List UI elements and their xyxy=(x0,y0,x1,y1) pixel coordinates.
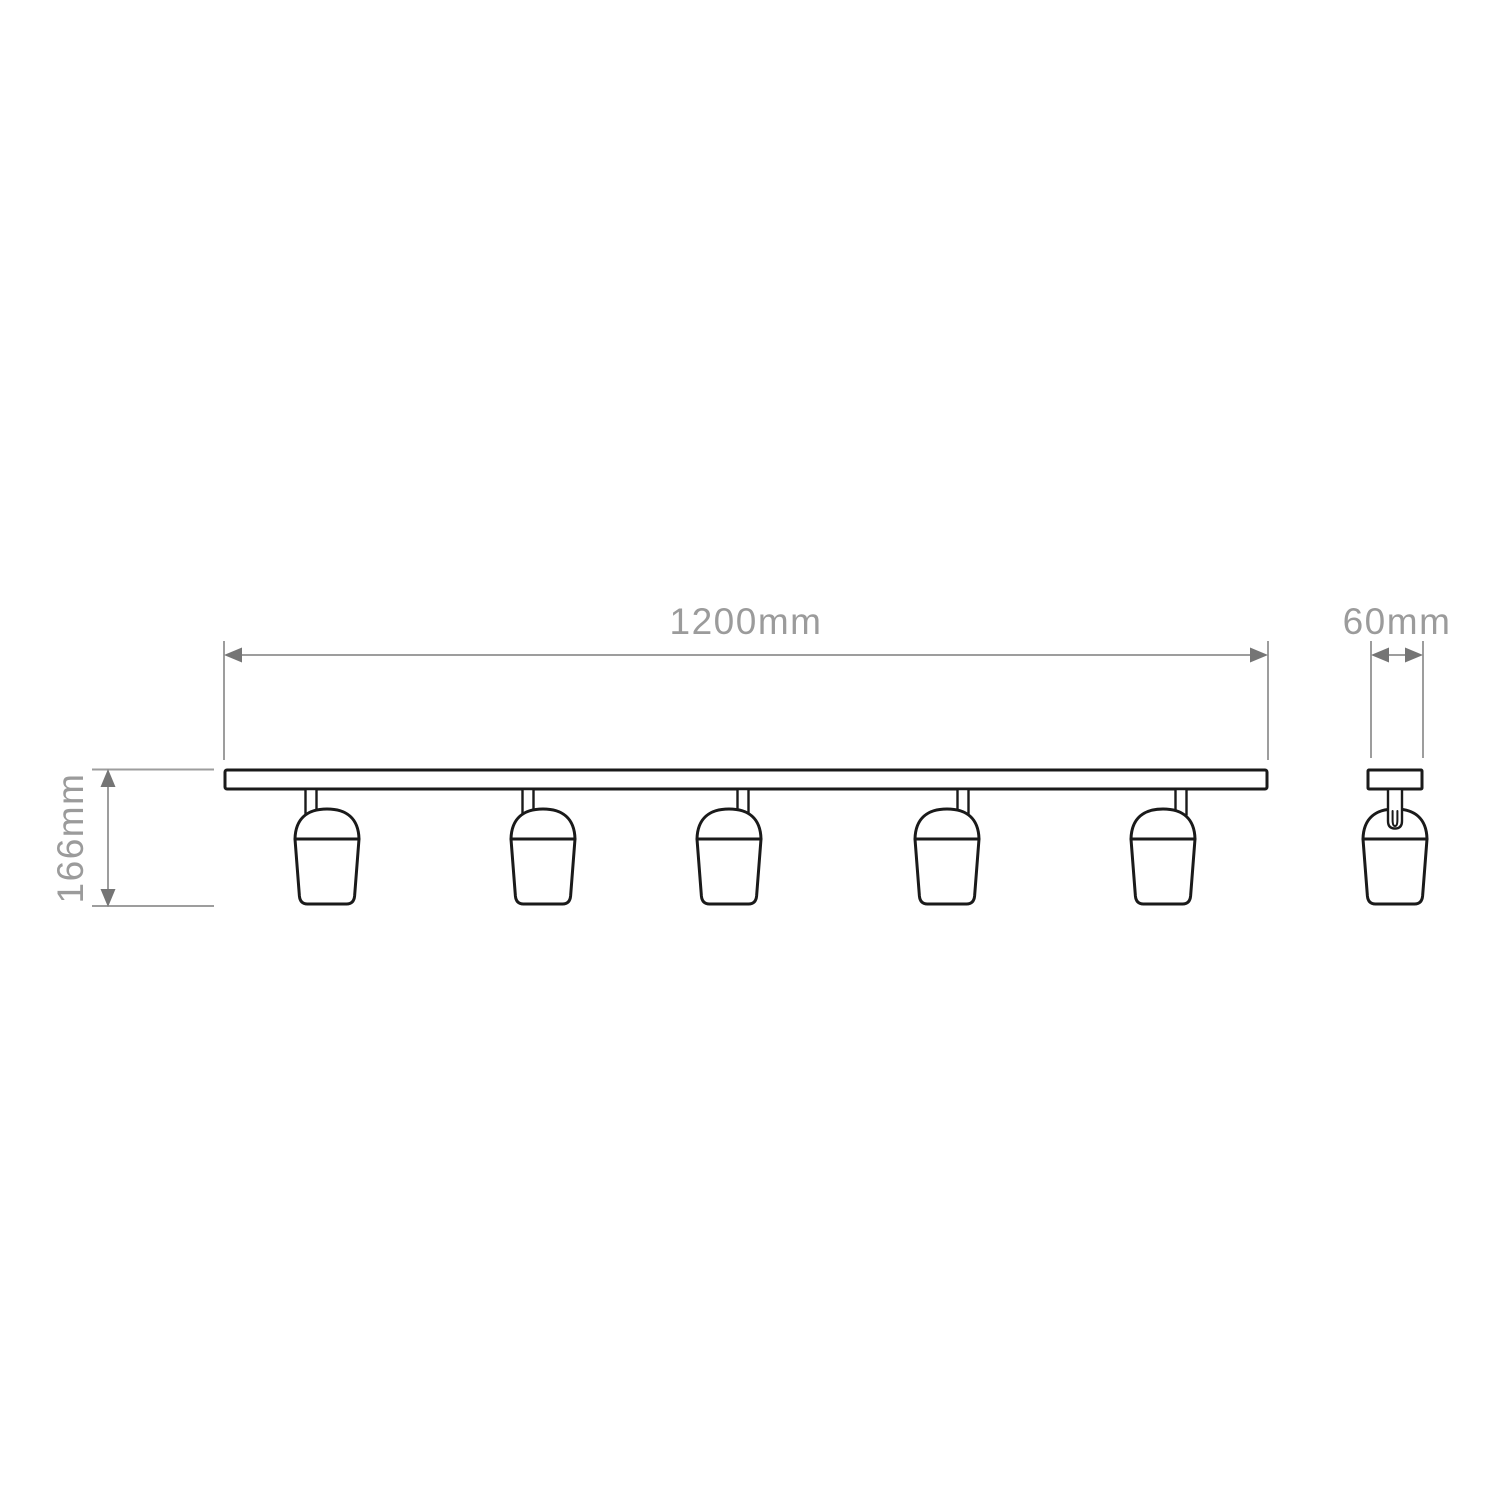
spotlight-4-head xyxy=(915,809,979,904)
height-arrowhead-top-icon xyxy=(101,769,116,787)
depth-dimension: 60mm xyxy=(1343,601,1452,758)
spotlight-5-head xyxy=(1131,809,1195,904)
spotlight-4 xyxy=(915,789,979,904)
height-dimension: 166mm xyxy=(50,769,214,907)
spotlight-3-head xyxy=(697,809,761,904)
spotlight-5 xyxy=(1131,789,1195,904)
track-bar xyxy=(225,770,1267,789)
width-dimension: 1200mm xyxy=(224,601,1268,760)
width-arrowhead-left-icon xyxy=(224,648,242,663)
depth-dimension-label: 60mm xyxy=(1343,601,1452,642)
side-view: 60mm xyxy=(1343,601,1452,904)
track-profile xyxy=(1368,770,1422,789)
width-dimension-label: 1200mm xyxy=(670,601,823,642)
spotlight-1 xyxy=(295,789,359,904)
depth-arrowhead-left-icon xyxy=(1371,648,1389,663)
spotlight-3 xyxy=(697,789,761,904)
depth-arrowhead-right-icon xyxy=(1405,648,1423,663)
height-dimension-label: 166mm xyxy=(50,773,91,904)
width-arrowhead-right-icon xyxy=(1250,648,1268,663)
front-view: 1200mm 166mm xyxy=(50,601,1268,907)
drawing-canvas: 1200mm 166mm xyxy=(0,0,1500,1500)
height-arrowhead-bottom-icon xyxy=(101,889,116,907)
spotlight-2-head xyxy=(511,809,575,904)
side-spotlight-stem-slot xyxy=(1393,811,1398,826)
spotlight-2 xyxy=(511,789,575,904)
dimension-drawing-svg: 1200mm 166mm xyxy=(0,0,1500,1500)
spotlight-1-head xyxy=(295,809,359,904)
